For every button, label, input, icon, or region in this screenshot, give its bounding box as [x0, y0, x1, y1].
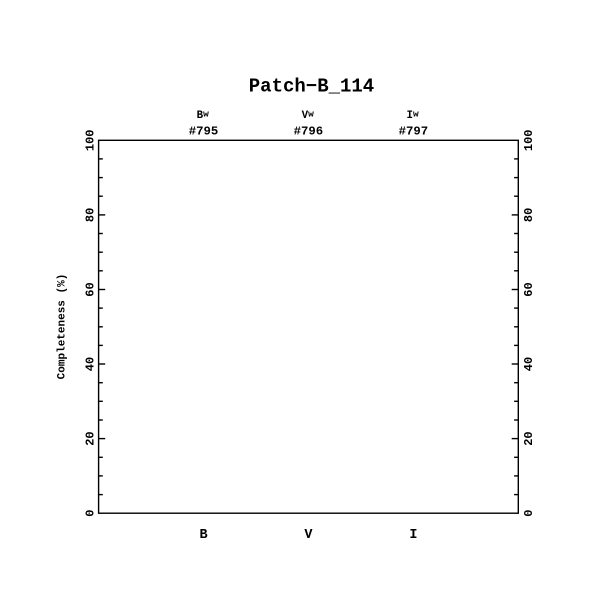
svg-text:Bw: Bw — [197, 109, 209, 122]
svg-text:#797: #797 — [399, 125, 429, 139]
svg-text:100: 100 — [522, 129, 536, 151]
svg-text:40: 40 — [522, 357, 536, 371]
svg-text:V: V — [304, 528, 313, 543]
svg-text:0: 0 — [84, 510, 98, 517]
svg-text:Iw: Iw — [407, 109, 419, 122]
svg-text:80: 80 — [522, 208, 536, 222]
svg-text:Patch−B_114: Patch−B_114 — [249, 75, 374, 97]
svg-text:60: 60 — [522, 282, 536, 296]
svg-text:20: 20 — [84, 431, 98, 445]
svg-text:0: 0 — [522, 510, 536, 517]
svg-text:#795: #795 — [189, 125, 219, 139]
svg-text:100: 100 — [84, 129, 98, 151]
svg-text:Vw: Vw — [302, 109, 314, 122]
svg-text:80: 80 — [84, 208, 98, 222]
svg-text:60: 60 — [84, 282, 98, 296]
svg-text:40: 40 — [84, 357, 98, 371]
svg-text:B: B — [199, 528, 207, 543]
svg-text:Completeness (%): Completeness (%) — [57, 274, 69, 380]
svg-text:#796: #796 — [294, 125, 324, 139]
svg-text:I: I — [409, 528, 417, 543]
svg-text:20: 20 — [522, 431, 536, 445]
